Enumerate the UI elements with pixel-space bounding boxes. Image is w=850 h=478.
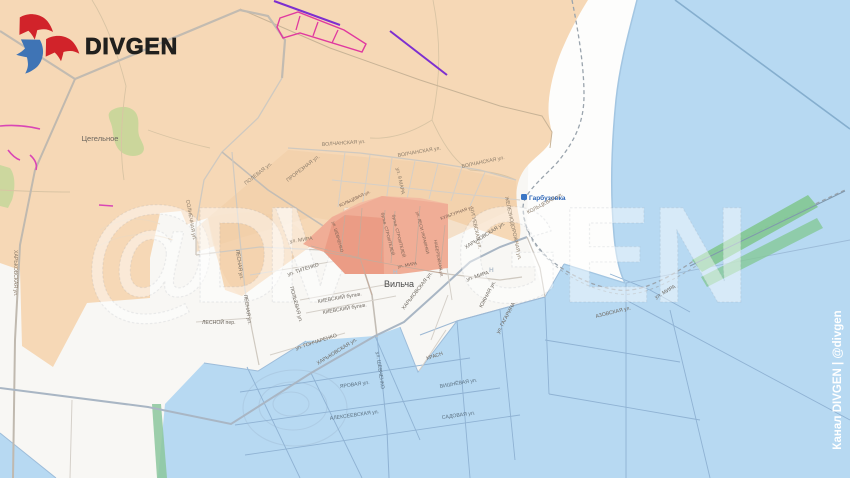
svg-text:ЛЕСНОЙ пер.: ЛЕСНОЙ пер.	[202, 318, 236, 326]
svg-text:GEN: GEN	[455, 179, 750, 332]
svg-text:Н: Н	[489, 267, 494, 274]
svg-text:DIVGEN: DIVGEN	[85, 33, 178, 59]
svg-text:ХАРЬКОВСКАЯ ул.: ХАРЬКОВСКАЯ ул.	[12, 250, 18, 296]
svg-text:Цегельное: Цегельное	[82, 134, 119, 143]
svg-text:Канал DIVGEN | @divgen: Канал DIVGEN | @divgen	[832, 310, 844, 449]
svg-text:Н: Н	[393, 269, 398, 276]
svg-text:Вильча: Вильча	[384, 279, 414, 289]
